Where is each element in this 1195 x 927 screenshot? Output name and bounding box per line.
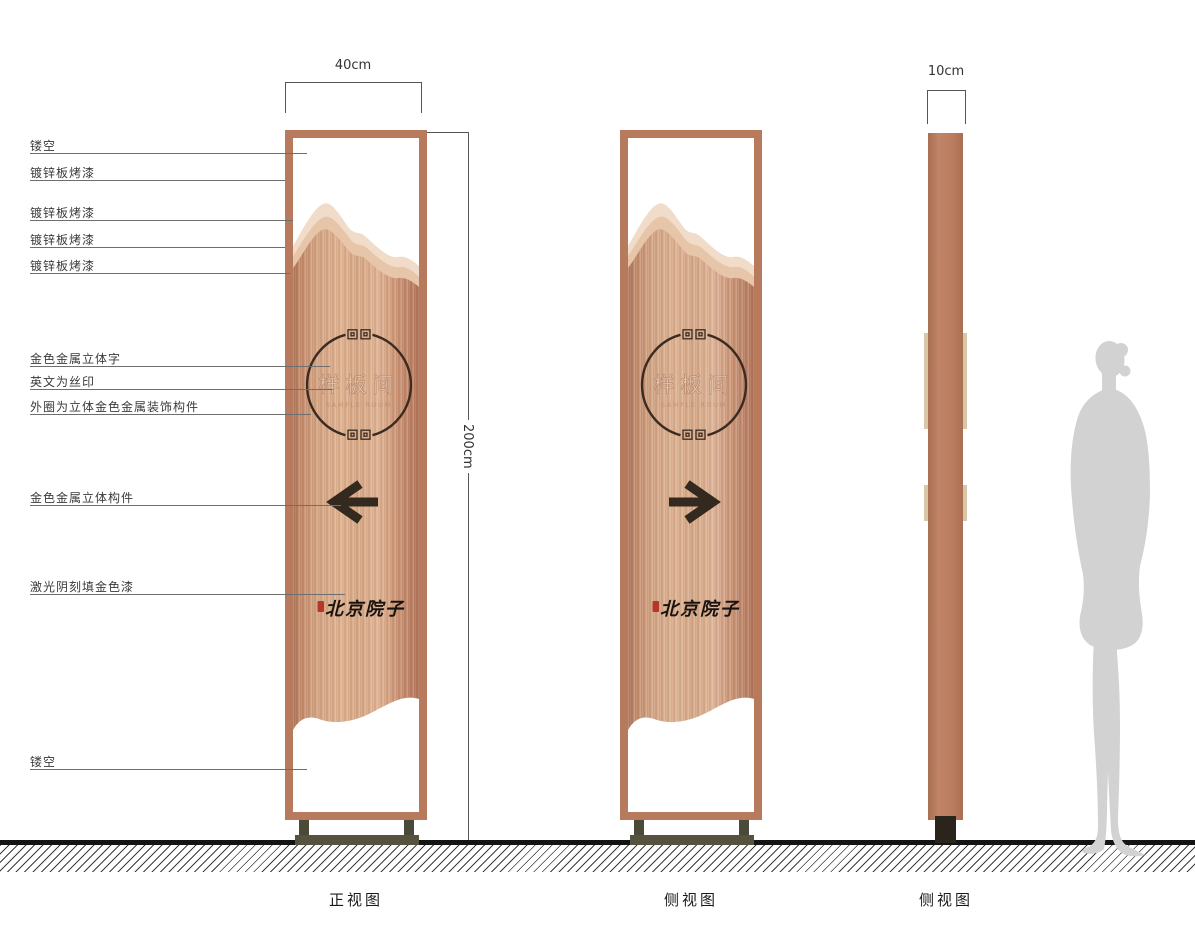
callout-hollow-bottom: 镂空 xyxy=(30,752,307,770)
wood-grain-texture xyxy=(628,229,754,730)
side-sign-base-post-right xyxy=(739,820,749,836)
caption-side-profile-view: 侧视图 xyxy=(881,889,1011,910)
side-panel-graphic: 样板间 SAMPLE ROOM 北京院子 xyxy=(628,138,754,812)
front-sign-base-post-right xyxy=(404,820,414,836)
front-panel-graphic: 样板间 SAMPLE ROOM 北京院子 xyxy=(293,138,419,812)
side-profile-foot xyxy=(935,816,956,843)
side-sign-base-bar xyxy=(630,835,754,845)
signage-design-drawing: 镂空 镀锌板烤漆 镀锌板烤漆 镀锌板烤漆 镀锌板烤漆 金色金属立体字 英文为丝印… xyxy=(0,0,1195,927)
brand-text: 北京院子 xyxy=(325,599,405,620)
dimension-height-label: 200cm xyxy=(459,420,476,473)
callout-laser-engraved: 激光阴刻填金色漆 xyxy=(30,577,345,595)
callout-galvanized-3: 镀锌板烤漆 xyxy=(30,230,285,248)
caption-front-view: 正视图 xyxy=(291,889,421,910)
callout-gold-letters: 金色金属立体字 xyxy=(30,349,330,367)
callout-galvanized-2: 镀锌板烤漆 xyxy=(30,203,293,221)
callout-label: 镂空 xyxy=(30,139,56,153)
dimension-depth-label: 10cm xyxy=(910,64,982,79)
callout-label: 外圈为立体金色金属装饰构件 xyxy=(30,400,199,414)
side-sign-base-post-left xyxy=(634,820,644,836)
dimension-height-tick xyxy=(427,132,468,133)
caption-side-view: 侧视图 xyxy=(626,889,756,910)
front-view-sign: 样板间 SAMPLE ROOM 北京院子 xyxy=(285,130,427,820)
dimension-height-line xyxy=(468,132,469,840)
wood-grain-texture xyxy=(293,229,419,730)
side-profile-column xyxy=(928,133,963,820)
callout-silkscreen: 英文为丝印 xyxy=(30,372,333,390)
dimension-width-label: 40cm xyxy=(285,58,421,73)
callout-label: 激光阴刻填金色漆 xyxy=(30,580,134,594)
brand-seal xyxy=(653,601,660,612)
brand-seal xyxy=(318,601,325,612)
dimension-width-bracket xyxy=(285,82,422,113)
brand-text: 北京院子 xyxy=(660,599,740,620)
callout-galvanized-1: 镀锌板烤漆 xyxy=(30,163,285,181)
callout-hollow-top: 镂空 xyxy=(30,136,307,154)
ground-hatch xyxy=(0,845,1195,872)
callout-gold-component: 金色金属立体构件 xyxy=(30,488,341,506)
scale-figure-silhouette xyxy=(1050,338,1165,857)
callout-label: 镀锌板烤漆 xyxy=(30,206,95,220)
panel-subtitle-text: SAMPLE ROOM xyxy=(661,401,727,409)
callout-label: 金色金属立体构件 xyxy=(30,491,134,505)
callout-label: 镀锌板烤漆 xyxy=(30,166,95,180)
front-sign-base-post-left xyxy=(299,820,309,836)
panel-title-text: 样板间 xyxy=(654,373,735,397)
callout-label: 镀锌板烤漆 xyxy=(30,233,95,247)
callout-label: 镂空 xyxy=(30,755,56,769)
callout-label: 镀锌板烤漆 xyxy=(30,259,95,273)
callout-outer-ring: 外圈为立体金色金属装饰构件 xyxy=(30,397,311,415)
dimension-depth-bracket xyxy=(927,90,966,124)
callout-label: 金色金属立体字 xyxy=(30,352,121,366)
panel-subtitle-text: SAMPLE ROOM xyxy=(326,401,392,409)
callout-label: 英文为丝印 xyxy=(30,375,95,389)
callout-galvanized-4: 镀锌板烤漆 xyxy=(30,256,290,274)
side-view-sign: 样板间 SAMPLE ROOM 北京院子 xyxy=(620,130,762,820)
front-sign-base-bar xyxy=(295,835,419,845)
